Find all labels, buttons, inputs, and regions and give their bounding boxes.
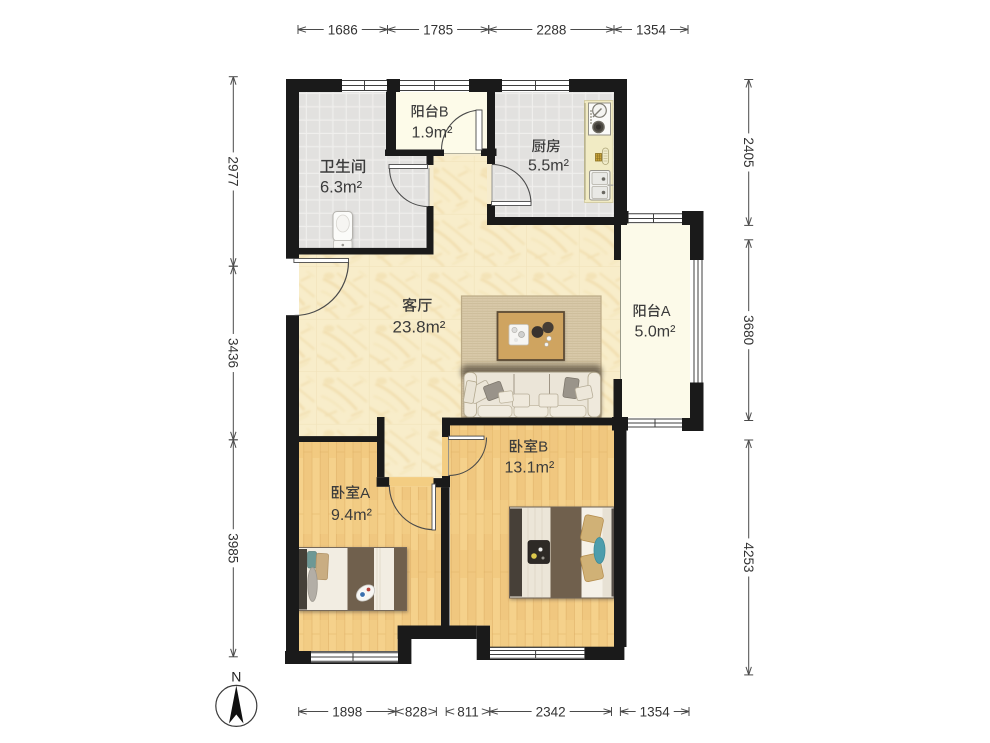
svg-text:1898: 1898 (332, 704, 362, 719)
svg-text:23.8m²: 23.8m² (393, 318, 446, 337)
svg-text:6.3m²: 6.3m² (320, 179, 363, 197)
svg-text:5.0m²: 5.0m² (635, 324, 677, 341)
svg-text:1354: 1354 (636, 22, 667, 37)
svg-text:3436: 3436 (226, 338, 241, 368)
svg-text:9.4m²: 9.4m² (331, 507, 373, 524)
svg-text:13.1m²: 13.1m² (505, 460, 555, 477)
svg-text:N: N (231, 669, 241, 685)
svg-text:A: A (661, 304, 671, 320)
svg-text:5.5m²: 5.5m² (528, 158, 570, 175)
svg-text:B: B (439, 104, 449, 120)
svg-text:811: 811 (457, 704, 479, 719)
svg-text:1785: 1785 (423, 22, 453, 37)
svg-text:2977: 2977 (226, 156, 241, 186)
svg-text:828: 828 (405, 704, 428, 719)
svg-text:4253: 4253 (741, 542, 756, 572)
svg-text:A: A (360, 485, 370, 502)
svg-text:2288: 2288 (536, 22, 566, 37)
svg-text:1.9m²: 1.9m² (412, 125, 454, 142)
svg-text:B: B (538, 439, 548, 456)
svg-text:3985: 3985 (226, 533, 241, 563)
svg-text:3680: 3680 (741, 315, 756, 345)
svg-text:2342: 2342 (536, 704, 566, 719)
svg-text:1354: 1354 (640, 704, 671, 719)
svg-text:1686: 1686 (328, 22, 358, 37)
svg-text:2405: 2405 (741, 137, 756, 167)
